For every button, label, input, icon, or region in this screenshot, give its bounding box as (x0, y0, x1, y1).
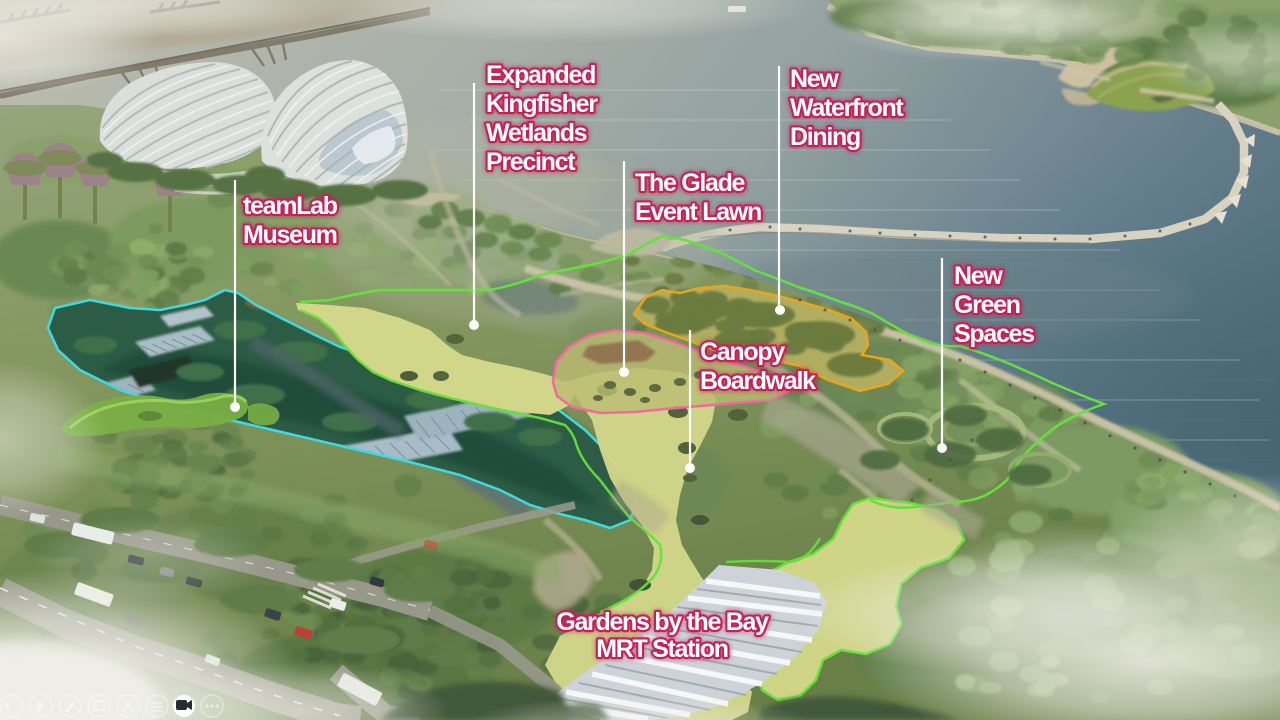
svg-text:The Glade: The Glade (635, 169, 746, 197)
svg-text:New: New (954, 262, 1003, 290)
svg-text:Wetlands: Wetlands (486, 119, 587, 147)
svg-text:Precinct: Precinct (486, 148, 576, 176)
svg-text:Expanded: Expanded (486, 61, 595, 89)
svg-text:teamLab: teamLab (243, 192, 338, 220)
svg-text:Green: Green (954, 291, 1020, 319)
svg-text:New: New (790, 65, 839, 93)
svg-text:Dining: Dining (790, 123, 860, 151)
svg-text:Spaces: Spaces (954, 320, 1034, 348)
svg-text:Canopy: Canopy (700, 338, 785, 366)
svg-text:Event Lawn: Event Lawn (635, 198, 761, 226)
svg-text:MRT Station: MRT Station (596, 635, 728, 663)
svg-text:Waterfront: Waterfront (790, 94, 904, 122)
svg-text:Kingfisher: Kingfisher (486, 90, 598, 118)
svg-text:Boardwalk: Boardwalk (700, 367, 816, 395)
svg-text:Museum: Museum (243, 221, 337, 249)
svg-text:Gardens by the Bay: Gardens by the Bay (556, 608, 769, 636)
